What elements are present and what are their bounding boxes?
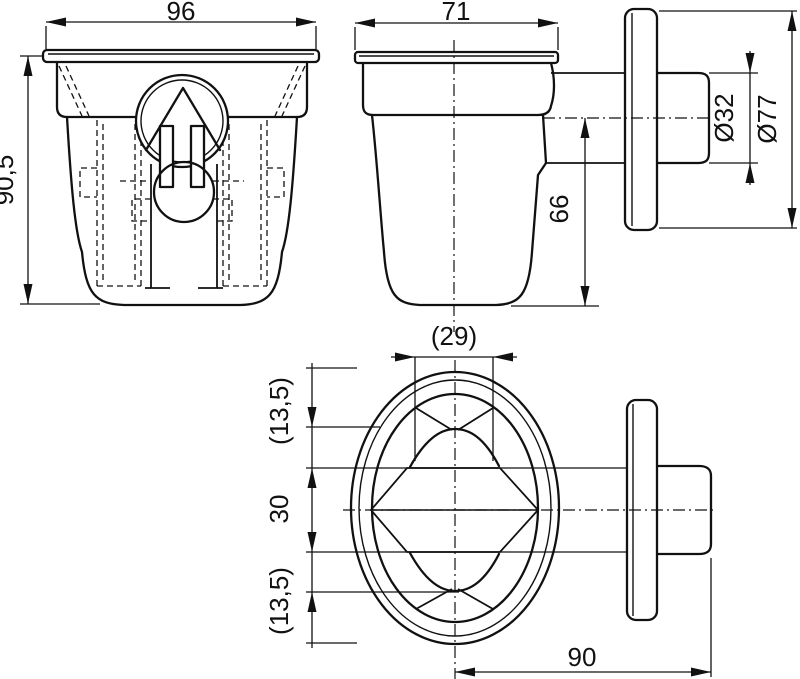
bottom-view — [306, 357, 627, 644]
dim-front-height-lines — [20, 56, 100, 304]
front-trap-circle — [154, 162, 214, 222]
arrowhead-down — [308, 407, 317, 427]
dim-slot-upper-label: (13,5) — [264, 377, 294, 445]
outlet-flange — [625, 9, 657, 230]
dim-pipe-diameter-label: Ø32 — [709, 93, 739, 142]
drawing-canvas: 96 90,5 71 66 Ø32 — [0, 0, 800, 679]
dim-flange-diameter-label: Ø77 — [752, 94, 782, 143]
arrowhead-right — [395, 353, 415, 362]
dim-side-length-label: 90 — [568, 642, 597, 672]
dim-grate-width: (29) — [391, 321, 517, 362]
arrowhead-left — [455, 668, 475, 677]
dim-front-width-label: 96 — [167, 0, 196, 26]
dim-front-height-label: 90,5 — [0, 155, 19, 206]
arrowhead-left — [355, 19, 375, 28]
front-inner-steps-hidden — [120, 181, 244, 221]
arrowhead-down — [24, 284, 33, 304]
dim-side-width-lines — [355, 23, 558, 50]
dim-outlet-band-label: 30 — [264, 495, 294, 524]
arrowhead-up — [746, 163, 755, 183]
arrowhead-left — [493, 353, 513, 362]
arrowhead-right — [296, 18, 316, 27]
front-left-channel-hidden — [97, 120, 141, 286]
arrowhead-down — [581, 286, 590, 306]
dim-pipe-diameter: Ø32 — [709, 51, 755, 185]
arrowhead-up — [581, 118, 590, 138]
arrowhead-up — [308, 592, 317, 612]
arrowhead-up — [24, 56, 33, 76]
arrowhead-down — [308, 532, 317, 552]
dim-axis-to-bottom-label: 66 — [544, 195, 574, 224]
arrowhead-right — [538, 19, 558, 28]
dim-side-length: 90 — [455, 558, 711, 677]
arrowhead-left — [46, 18, 66, 27]
arrowhead-down — [746, 53, 755, 73]
front-left-prong — [160, 126, 173, 187]
bottom-extension-lines — [306, 368, 627, 643]
arrowhead-right — [691, 668, 711, 677]
arrowhead-up — [308, 468, 317, 488]
dim-front-width-lines — [46, 22, 316, 49]
front-view — [43, 50, 319, 305]
front-side-notches-hidden — [80, 168, 284, 197]
side-upper-body — [363, 63, 554, 115]
dim-side-width: 71 — [355, 0, 558, 50]
front-lid — [43, 50, 319, 62]
side-cup-body — [372, 115, 546, 305]
dim-left-stack: (13,5) 30 (13,5) — [264, 363, 317, 648]
dim-grate-width-label: (29) — [431, 321, 477, 351]
front-right-channel-hidden — [223, 120, 267, 286]
dim-slot-lower-label: (13,5) — [264, 567, 294, 635]
arrowhead-down — [788, 208, 797, 228]
dim-axis-to-bottom: 66 — [511, 118, 599, 306]
dim-side-width-label: 71 — [442, 0, 471, 26]
dim-front-width: 96 — [46, 0, 316, 49]
dim-flange-diameter: Ø77 — [752, 11, 797, 228]
front-right-prong — [191, 126, 204, 187]
side-lid — [355, 52, 558, 63]
technical-drawing-floor-drain: 96 90,5 71 66 Ø32 — [0, 0, 800, 679]
arrowhead-up — [788, 11, 797, 31]
